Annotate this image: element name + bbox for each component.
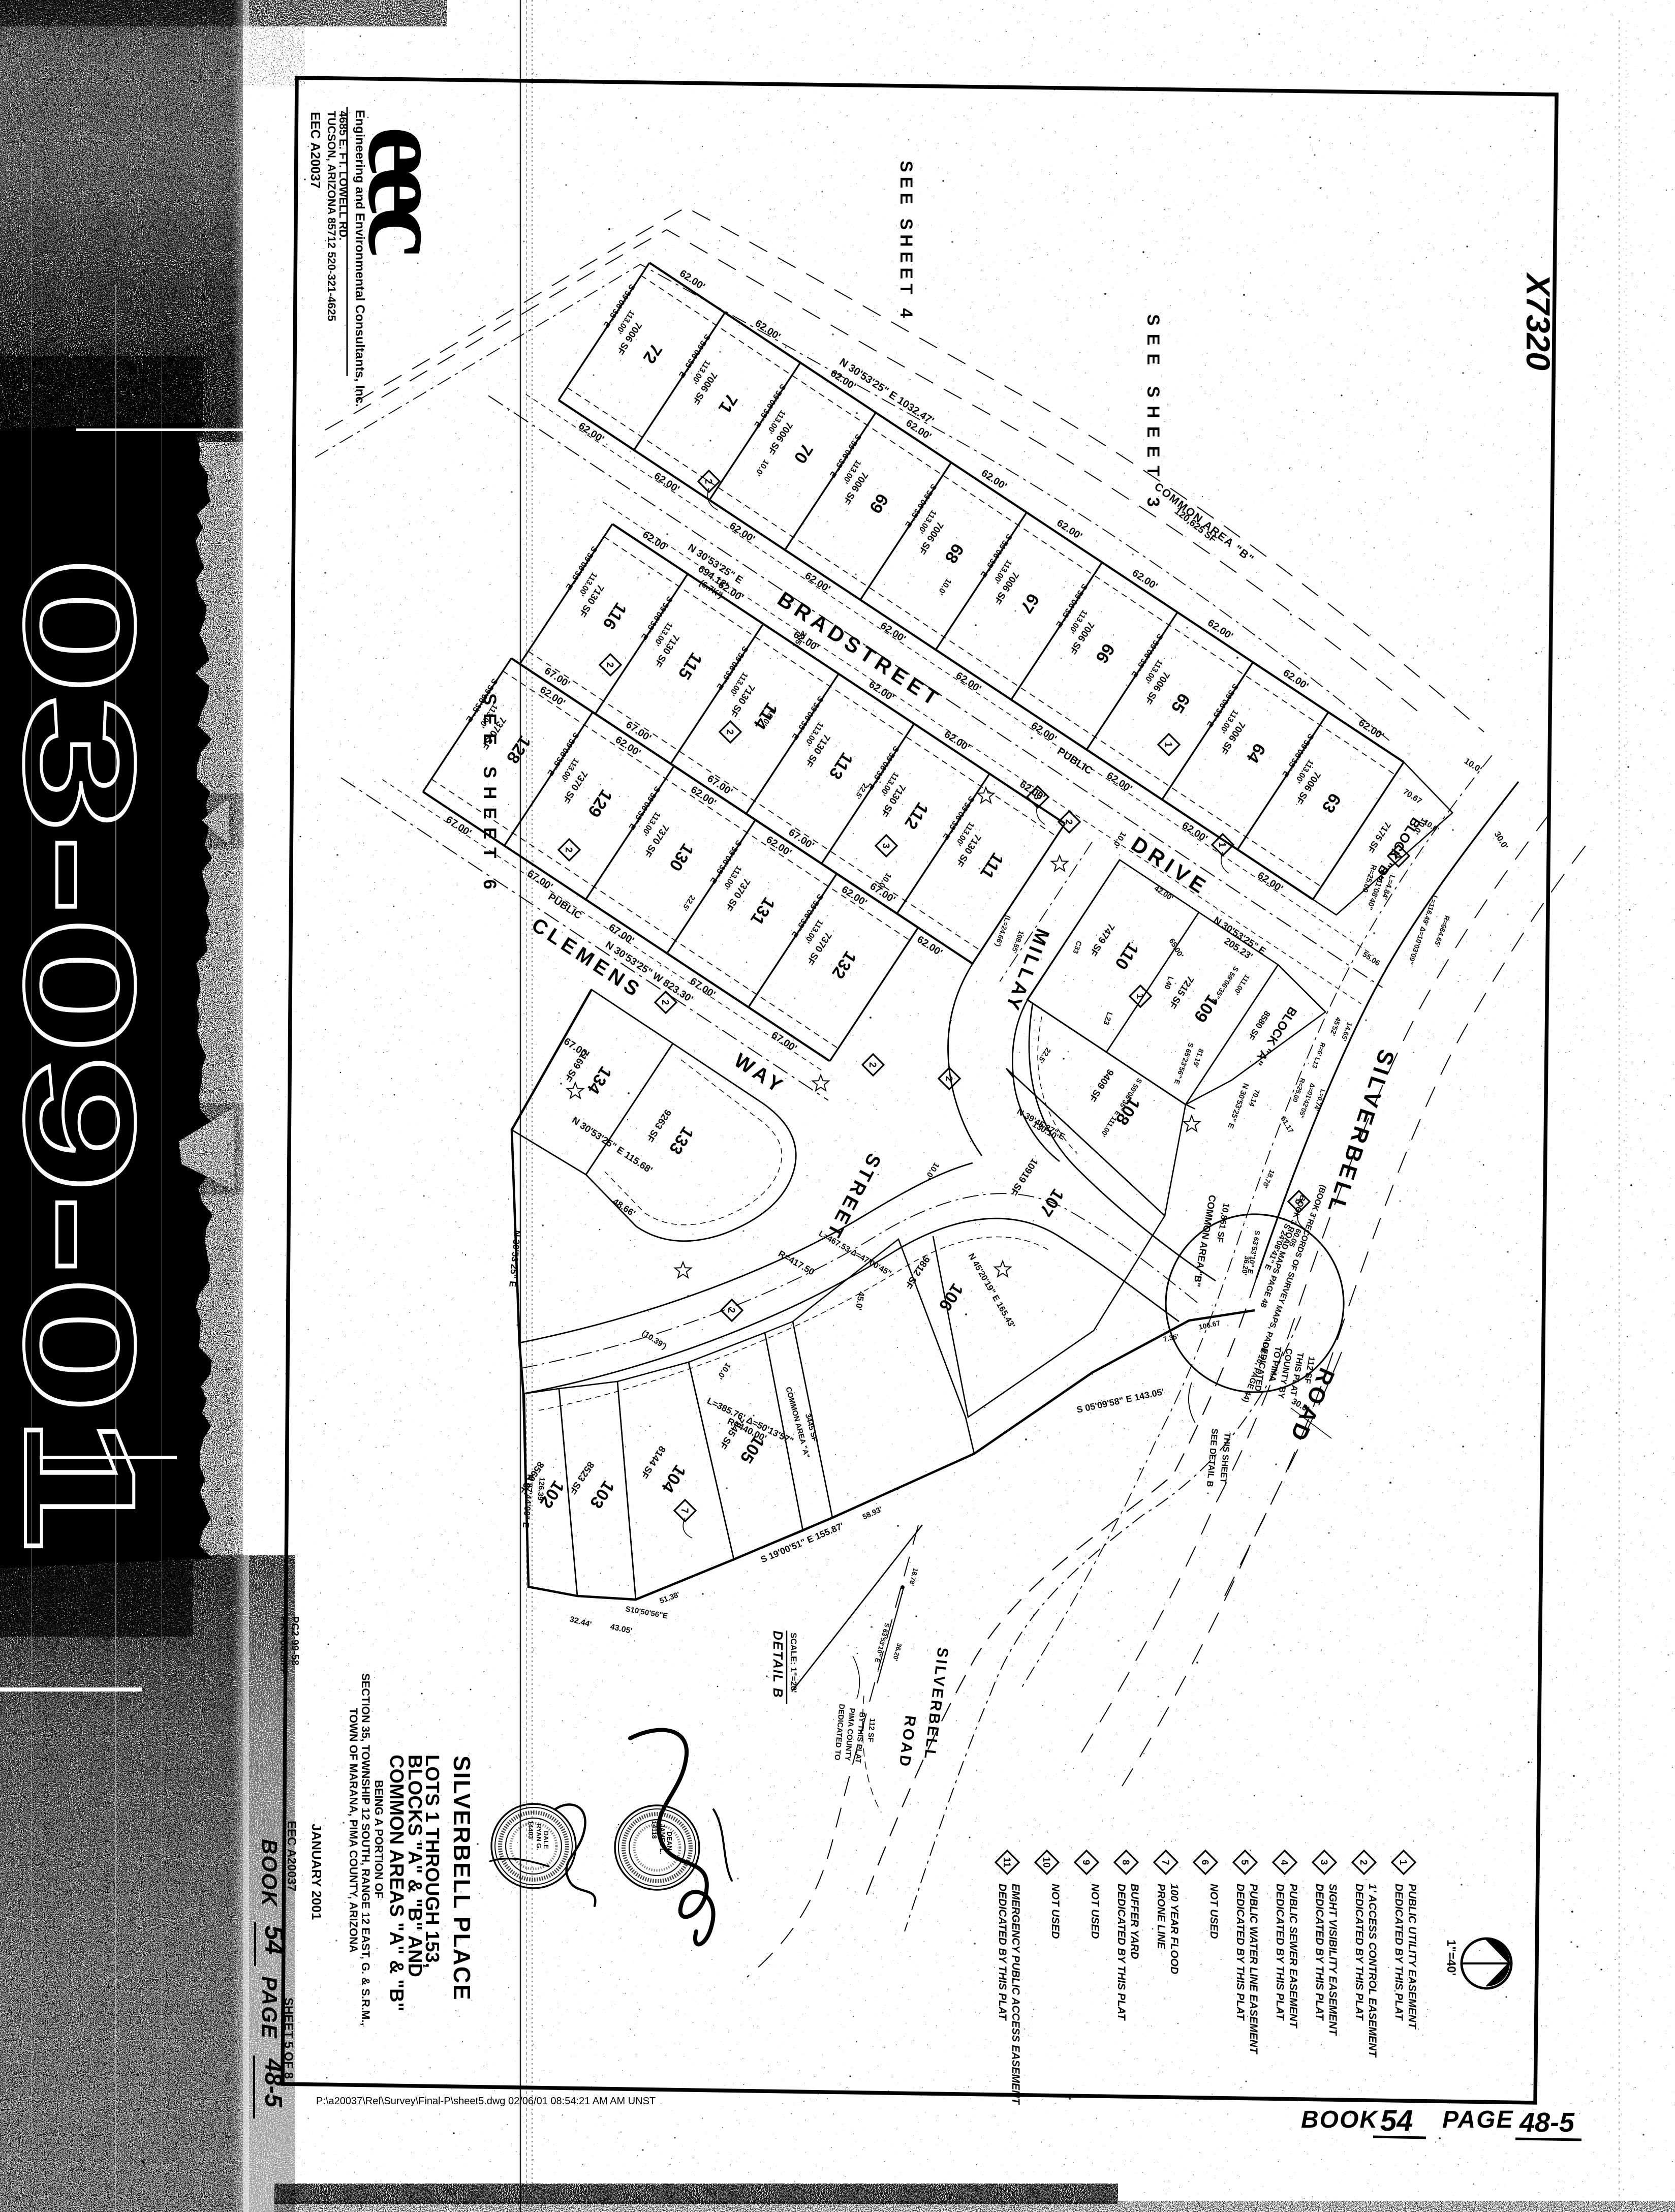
svg-text:48-5: 48-5	[1519, 2107, 1575, 2138]
svg-text:1"=40': 1"=40'	[1444, 1940, 1458, 1976]
svg-text:5: 5	[1239, 1860, 1250, 1865]
svg-text:PC2-99-58: PC2-99-58	[289, 1616, 300, 1666]
svg-text:SEE SHEET 3: SEE SHEET 3	[1143, 314, 1163, 515]
svg-text:EEC A20037: EEC A20037	[308, 112, 323, 189]
svg-text:DEDICATED BY THIS PLAT: DEDICATED BY THIS PLAT	[1234, 1884, 1246, 2021]
svg-text:SCALE: 1"=20': SCALE: 1"=20'	[789, 1633, 798, 1693]
svg-text:PUBLIC SEWER EASEMENT: PUBLIC SEWER EASEMENT	[1287, 1884, 1299, 2029]
svg-text:BOOK: BOOK	[1301, 2106, 1379, 2133]
svg-text:DEDICATED BY THIS PLAT: DEDICATED BY THIS PLAT	[1314, 1884, 1325, 2021]
svg-text:4: 4	[1279, 1860, 1289, 1865]
svg-text:2: 2	[726, 1308, 736, 1313]
svg-text:SEE SHEET 4: SEE SHEET 4	[896, 161, 916, 322]
svg-text:DEDICATED BY THIS PLAT: DEDICATED BY THIS PLAT	[1353, 1884, 1365, 2021]
svg-text:6: 6	[1199, 1860, 1210, 1865]
svg-text:BOOK: BOOK	[258, 1839, 282, 1908]
svg-text:10: 10	[1041, 1857, 1051, 1867]
svg-text:DEDICATED BY THIS PLAT: DEDICATED BY THIS PLAT	[997, 1884, 1008, 2021]
svg-text:6: 6	[1293, 1199, 1304, 1205]
svg-text:NOT USED: NOT USED	[1208, 1884, 1220, 1939]
svg-text:2: 2	[867, 1062, 878, 1068]
svg-text:COMMON AREAS "A" & "B": COMMON AREAS "A" & "B"	[386, 1755, 407, 2012]
svg-text:3: 3	[880, 843, 891, 849]
svg-text:DALE: DALE	[542, 1831, 550, 1849]
svg-text:3: 3	[1318, 1860, 1329, 1865]
svg-text:1' ACCESS CONTROL EASEMENT: 1' ACCESS CONTROL EASEMENT	[1367, 1884, 1378, 2058]
svg-text:54: 54	[1380, 2104, 1413, 2137]
svg-text:SIGHT VISIBILITY EASEMENT: SIGHT VISIBILITY EASEMENT	[1327, 1884, 1339, 2036]
svg-text:X7320: X7320	[1519, 271, 1557, 371]
svg-text:PAGE: PAGE	[258, 1976, 282, 2039]
svg-text:PRONE LINE: PRONE LINE	[1155, 1884, 1167, 1949]
svg-text:1: 1	[1398, 1860, 1408, 1865]
svg-text:4685 E. FT. LOWELL RD.: 4685 E. FT. LOWELL RD.	[337, 111, 350, 240]
svg-text:RYAN G.: RYAN G.	[535, 1824, 543, 1851]
svg-text:3: 3	[1032, 794, 1042, 800]
svg-text:2: 2	[724, 729, 735, 735]
svg-text:4: 4	[1392, 853, 1403, 859]
svg-text:DEDICATED BY THIS PLAT: DEDICATED BY THIS PLAT	[1393, 1884, 1405, 2021]
svg-text:14403: 14403	[527, 1821, 535, 1839]
svg-text:2: 2	[943, 1076, 954, 1082]
svg-text:PUBLIC UTILITY EASEMENT: PUBLIC UTILITY EASEMENT	[1406, 1884, 1418, 2030]
svg-text:DEAN: DEAN	[666, 1832, 673, 1851]
svg-text:7: 7	[679, 1508, 690, 1514]
svg-text:Engineering and Environmental: Engineering and Environmental Consultant…	[353, 110, 367, 407]
svg-text:PAGE: PAGE	[1442, 2106, 1513, 2133]
svg-text:54: 54	[259, 1925, 289, 1955]
svg-text:03-09-01: 03-09-01	[0, 557, 168, 1553]
svg-text:NOT USED: NOT USED	[1049, 1884, 1061, 1939]
svg-text:SECTION 35, TOWNSHIP 12 SOUTH,: SECTION 35, TOWNSHIP 12 SOUTH, RANGE 12 …	[359, 1673, 372, 2026]
svg-text:2: 2	[563, 847, 574, 853]
svg-text:TUCSON, ARIZONA 85712 520-: TUCSON, ARIZONA 85712 520-321-4625	[325, 111, 338, 321]
svg-text:2: 2	[1358, 1860, 1369, 1865]
svg-text:8: 8	[1120, 1860, 1131, 1865]
svg-text:11: 11	[1001, 1857, 1012, 1868]
svg-text:2: 2	[703, 479, 714, 484]
svg-text:100 YEAR FLOOD: 100 YEAR FLOOD	[1168, 1884, 1180, 1974]
svg-text:JANUARY 2001: JANUARY 2001	[309, 1824, 324, 1920]
svg-text:9: 9	[1080, 1860, 1091, 1865]
svg-text:SEE SHEET 6: SEE SHEET 6	[480, 693, 500, 898]
svg-text:EEC A20037: EEC A20037	[285, 1821, 298, 1891]
svg-text:7: 7	[1160, 1860, 1170, 1865]
svg-text:DEDICATED BY THIS PLAT: DEDICATED BY THIS PLAT	[1115, 1884, 1127, 2021]
svg-text:2: 2	[660, 1000, 670, 1005]
svg-text:SILVERBELL PLACE: SILVERBELL PLACE	[449, 1756, 475, 2001]
svg-text:TOWN OF MARANA, PIMA COUNTY, A: TOWN OF MARANA, PIMA COUNTY, ARIZONA	[347, 1708, 360, 1953]
svg-text:PRV-0030FP: PRV-0030FP	[278, 1616, 289, 1675]
svg-text:2: 2	[604, 662, 615, 668]
svg-text:1: 1	[1134, 994, 1145, 999]
svg-text:2: 2	[1063, 819, 1074, 825]
svg-text:DETAIL B: DETAIL B	[770, 1631, 786, 1698]
svg-text:1: 1	[1217, 842, 1227, 848]
svg-text:48-5: 48-5	[260, 2058, 287, 2108]
svg-text:BUFFER YARD: BUFFER YARD	[1129, 1884, 1140, 1959]
svg-text:EMERGENCY PUBLIC ACCESS EASEME: EMERGENCY PUBLIC ACCESS EASEMENT	[1010, 1884, 1021, 2105]
svg-text:BEING A PORTION OF: BEING A PORTION OF	[373, 1780, 385, 1898]
svg-text:1: 1	[1163, 742, 1173, 748]
svg-text:NOT USED: NOT USED	[1089, 1884, 1101, 1939]
svg-text:PUBLIC WATER LINE EASEMENT: PUBLIC WATER LINE EASEMENT	[1248, 1884, 1259, 2055]
svg-text:DEDICATED BY THIS PLAT: DEDICATED BY THIS PLAT	[1274, 1884, 1286, 2021]
svg-text:P:\a20037\Ref\Survey\Final-P\s: P:\a20037\Ref\Survey\Final-P\sheet5.dwg …	[316, 2096, 656, 2107]
